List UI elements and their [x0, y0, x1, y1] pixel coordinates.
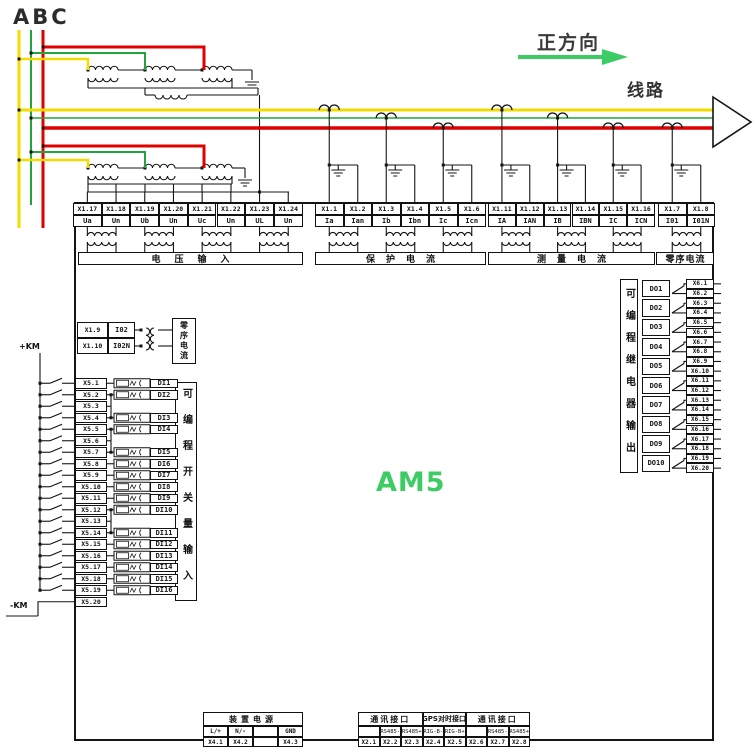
terminal-id: X1.1 — [315, 203, 344, 215]
di-label: DI3 — [150, 413, 178, 423]
di-label: DI12 — [150, 540, 178, 550]
di-terminal: X5.5 — [75, 424, 107, 435]
do-label: DO7 — [642, 396, 670, 413]
x6-terminal: X6.2 — [686, 289, 714, 299]
power-terminal: X4.1 — [203, 737, 228, 747]
do-label: DO8 — [642, 416, 670, 433]
di-section-label: 可编程开关量输入 — [175, 382, 197, 601]
di-terminal: X5.12 — [75, 505, 107, 516]
terminal-signal: IB — [544, 215, 572, 227]
terminal-id: X1.7 — [658, 203, 687, 215]
di-terminal: X5.14 — [75, 528, 107, 539]
do-label: DO2 — [642, 299, 670, 316]
terminal-id: X1.17 — [73, 203, 102, 215]
comm-terminal: X2.5 — [444, 737, 466, 747]
power-terminal — [253, 737, 278, 747]
x6-terminal: X6.9 — [686, 357, 714, 367]
function-label-protection: 保护电流 — [315, 252, 486, 265]
comm-signal — [358, 726, 380, 737]
x6-terminal: X6.14 — [686, 405, 714, 415]
terminal-signal: Un — [217, 215, 246, 227]
do-label: DO1 — [642, 280, 670, 297]
di-label: DI5 — [150, 448, 178, 458]
terminal-id: X1.23 — [245, 203, 274, 215]
line-arrow-icon — [713, 97, 751, 147]
terminal-id: X1.22 — [217, 203, 246, 215]
function-label-voltage: 电压输入 — [78, 252, 303, 265]
di-label: DI6 — [150, 459, 178, 469]
zeroseq-aux-terminal: X1.10 — [77, 338, 108, 354]
terminal-signal: UL — [245, 215, 274, 227]
terminal-id: X1.12 — [516, 203, 544, 215]
zeroseq-aux-signal: I02N — [108, 338, 135, 354]
terminal-id: X1.8 — [687, 203, 716, 215]
di-label: DI4 — [150, 425, 178, 435]
di-label: DI2 — [150, 390, 178, 400]
di-terminal: X5.4 — [75, 413, 107, 424]
terminal-signal: Ua — [73, 215, 102, 227]
power-terminal: X4.2 — [228, 737, 253, 747]
x6-terminal: X6.15 — [686, 415, 714, 425]
di-label: DI14 — [150, 563, 178, 573]
terminal-id: X1.3 — [372, 203, 401, 215]
x6-terminal: X6.8 — [686, 347, 714, 357]
di-terminal: X5.16 — [75, 551, 107, 562]
device-model-label: AM5 — [376, 467, 446, 498]
do-label: DO5 — [642, 358, 670, 375]
terminal-id: X1.11 — [488, 203, 516, 215]
terminal-signal: Ibn — [401, 215, 430, 227]
di-terminal: X5.10 — [75, 482, 107, 493]
di-terminal: X5.6 — [75, 436, 107, 447]
direction-arrow-icon — [516, 46, 632, 68]
terminal-id: X1.14 — [572, 203, 600, 215]
di-label: DI10 — [150, 505, 178, 515]
di-label: DI8 — [150, 482, 178, 492]
terminal-signal: Uc — [188, 215, 217, 227]
x6-terminal: X6.20 — [686, 463, 714, 473]
terminal-id: X1.16 — [627, 203, 655, 215]
di-label: DI11 — [150, 528, 178, 538]
di-terminal: X5.11 — [75, 493, 107, 504]
comm-terminal: X2.2 — [380, 737, 402, 747]
zeroseq-aux-signal: I02 — [108, 322, 135, 338]
terminal-id: X1.13 — [544, 203, 572, 215]
terminal-signal: Un — [102, 215, 131, 227]
di-label: DI9 — [150, 494, 178, 504]
comm-signal — [466, 726, 488, 737]
di-label: DI15 — [150, 574, 178, 584]
x6-terminal: X6.12 — [686, 386, 714, 396]
comm-terminal: X2.7 — [487, 737, 509, 747]
zeroseq-aux-terminal: X1.9 — [77, 322, 108, 338]
terminal-signal: IBN — [572, 215, 600, 227]
terminal-signal: Ia — [315, 215, 344, 227]
terminal-id: X1.15 — [599, 203, 627, 215]
terminal-signal: IAN — [516, 215, 544, 227]
di-terminal: X5.8 — [75, 459, 107, 470]
x6-terminal: X6.11 — [686, 376, 714, 386]
terminal-signal: Un — [274, 215, 303, 227]
comm-signal: RIG-B- — [423, 726, 445, 737]
km-minus-label: -KM — [10, 601, 27, 610]
wiring-diagram: ABC 正方向 线路 AM5 +KM -KM 电压输入 保护电流 测量电流 零序… — [0, 0, 756, 752]
comm-terminal: X2.6 — [466, 737, 488, 747]
do-section-label: 可编程继电器输出 — [620, 279, 638, 473]
do-label: DO9 — [642, 435, 670, 452]
function-label-zeroseq: 零序电流 — [656, 252, 714, 265]
terminal-signal: I01 — [658, 215, 687, 227]
di-terminal: X5.18 — [75, 574, 107, 585]
line-label: 线路 — [627, 76, 665, 101]
di-label: DI7 — [150, 471, 178, 481]
di-label: DI1 — [150, 379, 178, 389]
terminal-signal: ICN — [627, 215, 655, 227]
terminal-signal: Ub — [130, 215, 159, 227]
x6-terminal: X6.3 — [686, 298, 714, 308]
terminal-id: X1.21 — [188, 203, 217, 215]
terminal-signal: Ian — [344, 215, 373, 227]
function-label-measure: 测量电流 — [488, 252, 655, 265]
comm-signal: RS485+ — [401, 726, 423, 737]
di-terminal: X5.19 — [75, 585, 107, 596]
terminal-id: X1.2 — [344, 203, 373, 215]
x6-terminal: X6.6 — [686, 328, 714, 338]
comm-terminal: X2.4 — [423, 737, 445, 747]
di-terminal: X5.13 — [75, 516, 107, 527]
x6-terminal: X6.1 — [686, 279, 714, 289]
comm-signal: RS485- — [487, 726, 509, 737]
di-terminal: X5.17 — [75, 562, 107, 573]
do-label: DO10 — [642, 455, 670, 472]
x6-terminal: X6.17 — [686, 434, 714, 444]
phase-abc-label: ABC — [13, 5, 70, 29]
terminal-signal: I01N — [687, 215, 716, 227]
terminal-signal: Ib — [372, 215, 401, 227]
comm-signal: RS485+ — [509, 726, 531, 737]
di-terminal: X5.7 — [75, 447, 107, 458]
power-signal: GND — [278, 726, 303, 737]
di-label: DI13 — [150, 551, 178, 561]
di-terminal: X5.1 — [75, 378, 107, 389]
x6-terminal: X6.4 — [686, 308, 714, 318]
do-label: DO4 — [642, 338, 670, 355]
gps-table-title: GPS对时接口 — [423, 712, 466, 726]
terminal-id: X1.20 — [159, 203, 188, 215]
comm-terminal: X2.8 — [509, 737, 531, 747]
di-terminal: X5.2 — [75, 390, 107, 401]
di-terminal: X5.3 — [75, 401, 107, 412]
terminal-id: X1.19 — [130, 203, 159, 215]
x6-terminal: X6.19 — [686, 454, 714, 464]
terminal-id: X1.5 — [429, 203, 458, 215]
power-signal — [253, 726, 278, 737]
di-label: DI16 — [150, 586, 178, 596]
wiring-svg — [0, 0, 756, 752]
x6-terminal: X6.16 — [686, 425, 714, 435]
x6-terminal: X6.18 — [686, 444, 714, 454]
do-label: DO6 — [642, 377, 670, 394]
terminal-id: X1.24 — [274, 203, 303, 215]
power-table-title: 装置电源 — [203, 712, 303, 726]
comm-terminal: X2.1 — [358, 737, 380, 747]
x6-terminal: X6.13 — [686, 395, 714, 405]
di-terminal: X5.9 — [75, 470, 107, 481]
terminal-id: X1.18 — [102, 203, 131, 215]
zeroseq-aux-label: 零序电流 — [172, 318, 196, 364]
comm-signal: RS485- — [380, 726, 402, 737]
comm-table-title-2: 通讯接口 — [466, 712, 531, 726]
terminal-signal: Ic — [429, 215, 458, 227]
terminal-signal: Icn — [458, 215, 487, 227]
terminal-signal: IA — [488, 215, 516, 227]
comm-terminal: X2.3 — [401, 737, 423, 747]
di-terminal: X5.15 — [75, 539, 107, 550]
x6-terminal: X6.10 — [686, 366, 714, 376]
comm-table-title-1: 通讯接口 — [358, 712, 423, 726]
di-terminal: X5.20 — [75, 597, 107, 608]
comm-signal: RIG-B+ — [444, 726, 466, 737]
power-terminal: X4.3 — [278, 737, 303, 747]
terminal-id: X1.4 — [401, 203, 430, 215]
terminal-signal: Un — [159, 215, 188, 227]
x6-terminal: X6.7 — [686, 337, 714, 347]
terminal-id: X1.6 — [458, 203, 487, 215]
power-signal: L/+ — [203, 726, 228, 737]
km-plus-label: +KM — [19, 342, 40, 351]
power-signal: N/- — [228, 726, 253, 737]
terminal-signal: IC — [599, 215, 627, 227]
do-label: DO3 — [642, 319, 670, 336]
x6-terminal: X6.5 — [686, 318, 714, 328]
